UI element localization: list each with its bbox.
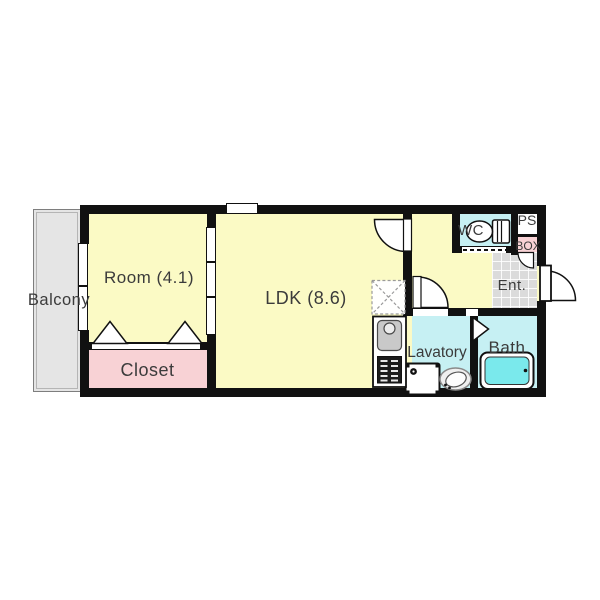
lavatory-door-swing-icon — [413, 277, 448, 309]
floor-plan: Balcony Room (4.1) LDK (8.6) Closet WC P… — [0, 0, 600, 600]
balcony-label: Balcony — [24, 292, 94, 309]
closet-folding-door-icon — [93, 322, 202, 344]
washing-machine-icon — [406, 364, 440, 395]
lavatory-sink-icon — [440, 368, 471, 390]
box-door-swing-icon — [518, 253, 534, 269]
ldk-door-swing-icon — [375, 219, 412, 252]
ps-label: PS — [512, 213, 542, 227]
refrigerator-space-icon — [372, 281, 405, 315]
entrance-label: Ent. — [487, 278, 537, 293]
wc-label: WC — [451, 223, 491, 238]
closet-label: Closet — [87, 361, 208, 379]
box-label: BOX — [511, 240, 545, 252]
entrance-door-swing-icon — [540, 266, 576, 302]
bath-folding-door-icon — [473, 318, 489, 342]
lavatory-label: Lavatory — [397, 345, 477, 361]
bathtub-icon — [481, 353, 534, 390]
bath-label: Bath — [477, 339, 537, 356]
ldk-label: LDK (8.6) — [246, 289, 366, 307]
room-label: Room (4.1) — [89, 269, 209, 286]
